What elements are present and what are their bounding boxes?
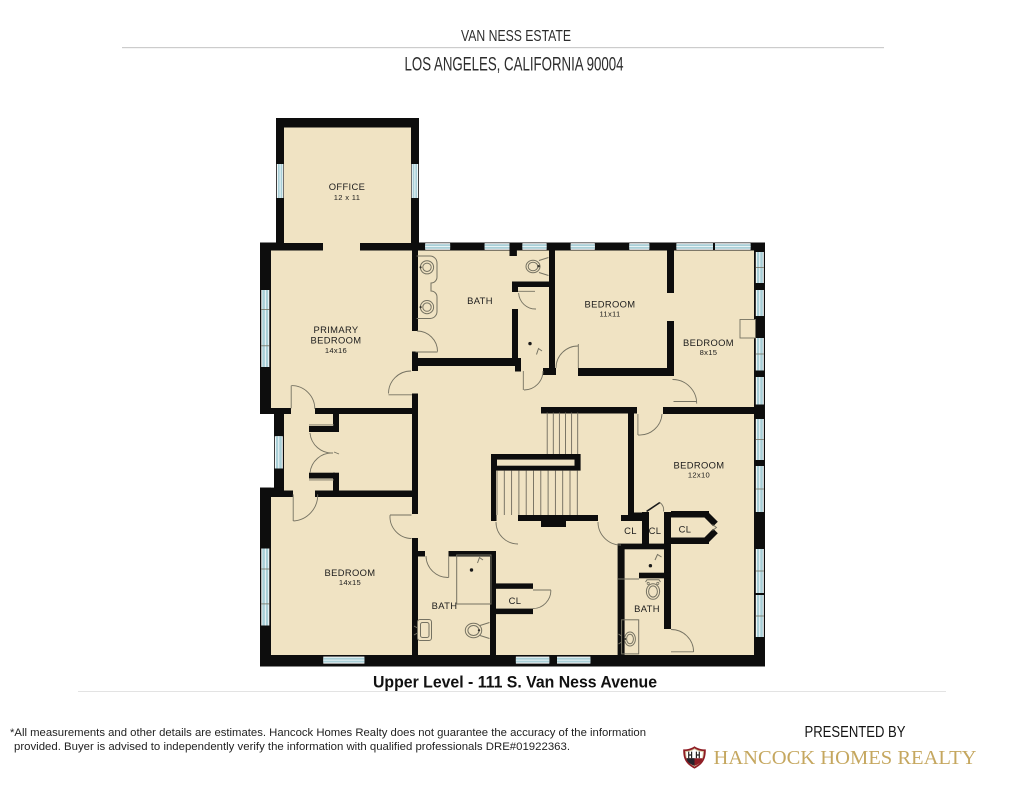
svg-text:BATH: BATH <box>634 603 660 614</box>
svg-text:BATH: BATH <box>432 600 458 611</box>
svg-text:CL: CL <box>624 525 637 536</box>
svg-text:*All measurements and other de: *All measurements and other details are … <box>10 727 646 739</box>
svg-text:14x16: 14x16 <box>325 346 347 355</box>
svg-text:provided. Buyer is advised to: provided. Buyer is advised to independen… <box>14 741 570 753</box>
svg-text:BEDROOM: BEDROOM <box>674 460 725 471</box>
svg-text:BEDROOM: BEDROOM <box>585 299 636 310</box>
svg-text:BEDROOM: BEDROOM <box>325 567 376 578</box>
svg-text:HANCOCK HOMES REALTY: HANCOCK HOMES REALTY <box>714 747 977 769</box>
svg-text:CL: CL <box>679 524 692 535</box>
svg-text:14x15: 14x15 <box>339 578 361 587</box>
svg-text:VAN NESS ESTATE: VAN NESS ESTATE <box>461 28 571 45</box>
svg-text:PRESENTED BY: PRESENTED BY <box>805 724 906 741</box>
svg-text:LOS ANGELES, CALIFORNIA 90004: LOS ANGELES, CALIFORNIA 90004 <box>405 55 624 76</box>
svg-text:BEDROOM: BEDROOM <box>683 337 734 348</box>
svg-text:12 x 11: 12 x 11 <box>334 193 360 202</box>
svg-text:CL: CL <box>509 595 522 606</box>
svg-text:Upper Level - 111 S. Van Ness: Upper Level - 111 S. Van Ness Avenue <box>373 674 657 692</box>
svg-text:11x11: 11x11 <box>599 310 620 319</box>
svg-text:8x15: 8x15 <box>700 348 718 357</box>
svg-text:BATH: BATH <box>467 295 493 306</box>
svg-text:12x10: 12x10 <box>688 471 710 480</box>
svg-text:BEDROOM: BEDROOM <box>311 335 362 346</box>
svg-text:OFFICE: OFFICE <box>329 181 365 192</box>
svg-text:CL: CL <box>649 525 662 536</box>
svg-text:PRIMARY: PRIMARY <box>314 324 359 335</box>
